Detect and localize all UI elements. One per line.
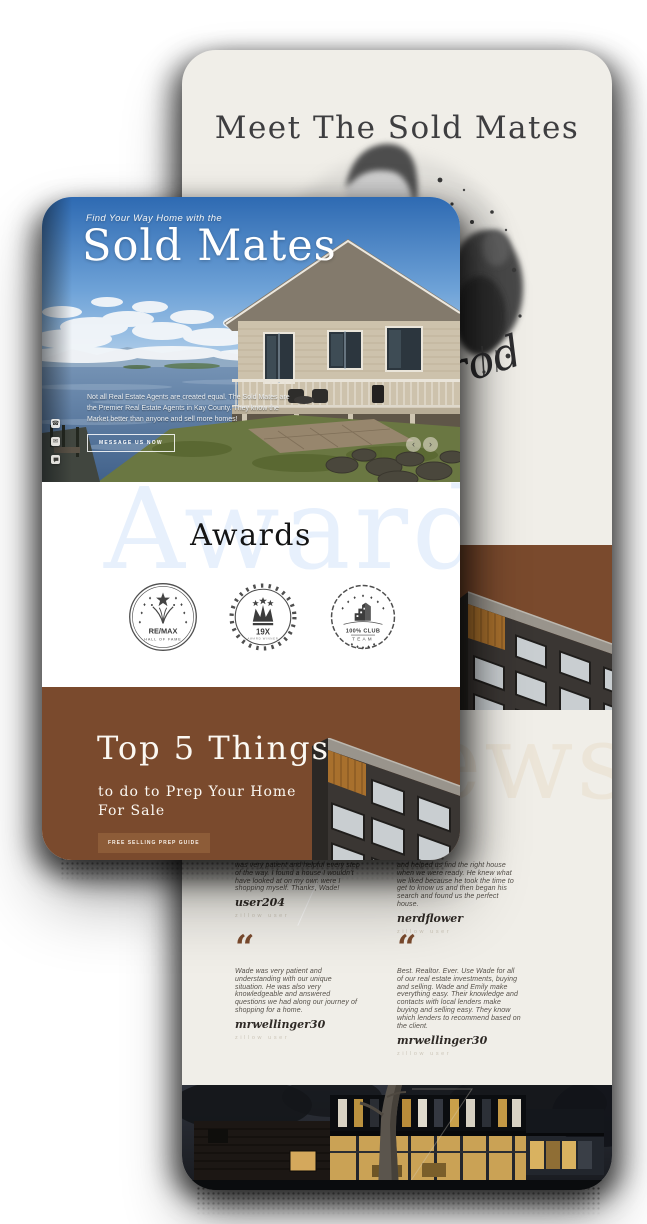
quote-icon: “ xyxy=(397,936,522,960)
testimonial-author: user204 xyxy=(235,897,360,909)
top5-subtitle-line1: to do to Prep Your Home xyxy=(98,784,296,800)
message-us-button[interactable]: MESSAGE US NOW xyxy=(87,434,175,452)
dusk-house-photo xyxy=(182,1085,612,1190)
19x-award-badge: 19X AWARD WINNER xyxy=(226,580,300,654)
carousel-prev-button[interactable]: ‹ xyxy=(406,437,421,452)
svg-text:RE/MAX: RE/MAX xyxy=(149,627,178,636)
testimonial-author: mrwellinger30 xyxy=(235,1019,360,1031)
svg-text:19X: 19X xyxy=(256,628,271,637)
award-badges: RE/MAX HALL OF FAME 19X AWARD WINNER xyxy=(126,580,400,654)
top5-subtitle-line2: For Sale xyxy=(98,803,165,819)
hero-title: Sold Mates xyxy=(82,221,337,271)
chat-icon[interactable] xyxy=(51,455,60,464)
svg-text:TEAM: TEAM xyxy=(352,637,374,642)
awards-section: Awards Awards xyxy=(42,482,460,687)
testimonial-quote: Best. Realtor. Ever. Use Wade for all of… xyxy=(397,968,522,1031)
top5-section: Top 5 Things to do to Prep Your HomeFor … xyxy=(42,687,460,860)
mail-icon[interactable]: ✉ xyxy=(51,437,60,446)
quote-icon: “ xyxy=(235,936,360,960)
testimonial-card: “ Wade was very patient and understandin… xyxy=(235,936,360,1057)
top5-title: Top 5 Things xyxy=(97,729,330,767)
free-guide-button[interactable]: FREE SELLING PREP GUIDE xyxy=(98,833,210,853)
svg-text:AWARD WINNER: AWARD WINNER xyxy=(248,637,279,641)
remax-hall-of-fame-badge: RE/MAX HALL OF FAME xyxy=(126,580,200,654)
testimonial-card: “ Best. Realtor. Ever. Use Wade for all … xyxy=(397,936,522,1057)
testimonial-quote: Wade was very patient and understanding … xyxy=(235,968,360,1015)
contact-rail: ☎ ✉ xyxy=(51,419,60,464)
testimonial-author: nerdflower xyxy=(397,913,522,925)
hero-section: Find Your Way Home with the Sold Mates N… xyxy=(42,197,460,482)
top5-subtitle: to do to Prep Your HomeFor Sale xyxy=(98,783,296,821)
testimonial-source: zillow user xyxy=(235,1035,360,1041)
drop-shadow-grain xyxy=(196,1186,600,1216)
100-percent-club-team-badge: 100% CLUB TEAM xyxy=(326,580,400,654)
front-phone-mockup: Find Your Way Home with the Sold Mates N… xyxy=(42,197,460,860)
hero-carousel-controls: ‹ › xyxy=(406,437,438,452)
phone-icon[interactable]: ☎ xyxy=(51,419,60,428)
awards-title: Awards xyxy=(42,518,460,553)
testimonial-author: mrwellinger30 xyxy=(397,1035,522,1047)
svg-text:100% CLUB: 100% CLUB xyxy=(346,628,380,634)
hero-description: Not all Real Estate Agents are created e… xyxy=(87,393,299,426)
testimonials-row-2: “ Wade was very patient and understandin… xyxy=(235,936,522,1057)
carousel-next-button[interactable]: › xyxy=(423,437,438,452)
testimonial-source: zillow user xyxy=(235,913,360,919)
svg-text:HALL OF FAME: HALL OF FAME xyxy=(144,638,181,642)
testimonial-source: zillow user xyxy=(397,1051,522,1057)
